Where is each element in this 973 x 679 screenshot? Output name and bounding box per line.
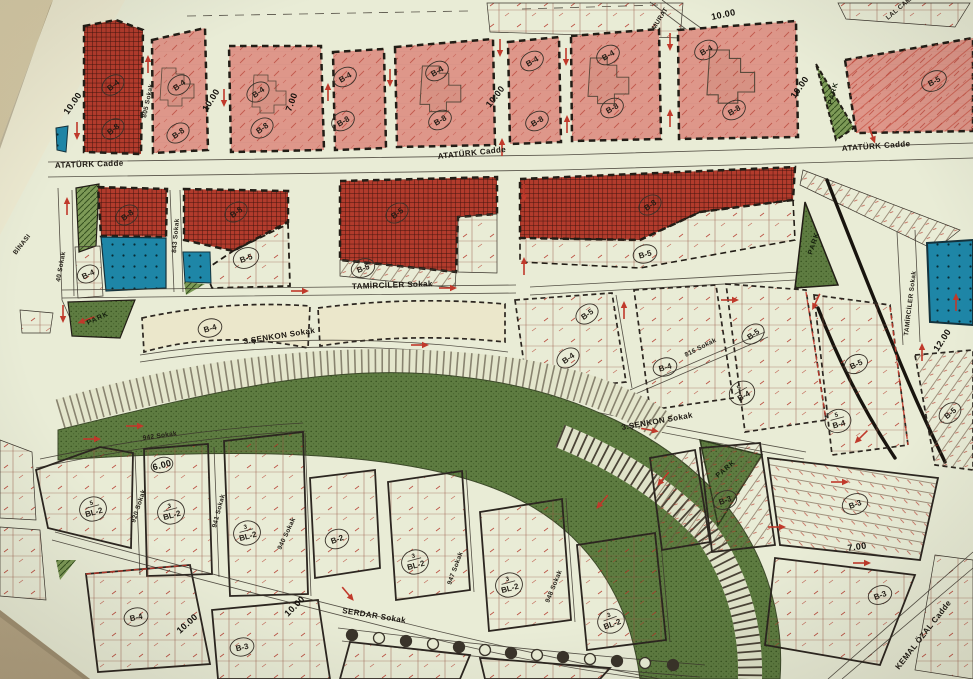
zoning-map-photo: B-4 B-8 B-4 B-8 B-4 B-8 B-4 B-8 B-4 B-8 … xyxy=(0,0,973,679)
photo-vignette xyxy=(0,0,973,679)
zoning-map: B-4 B-8 B-4 B-8 B-4 B-8 B-4 B-8 B-4 B-8 … xyxy=(0,0,973,679)
